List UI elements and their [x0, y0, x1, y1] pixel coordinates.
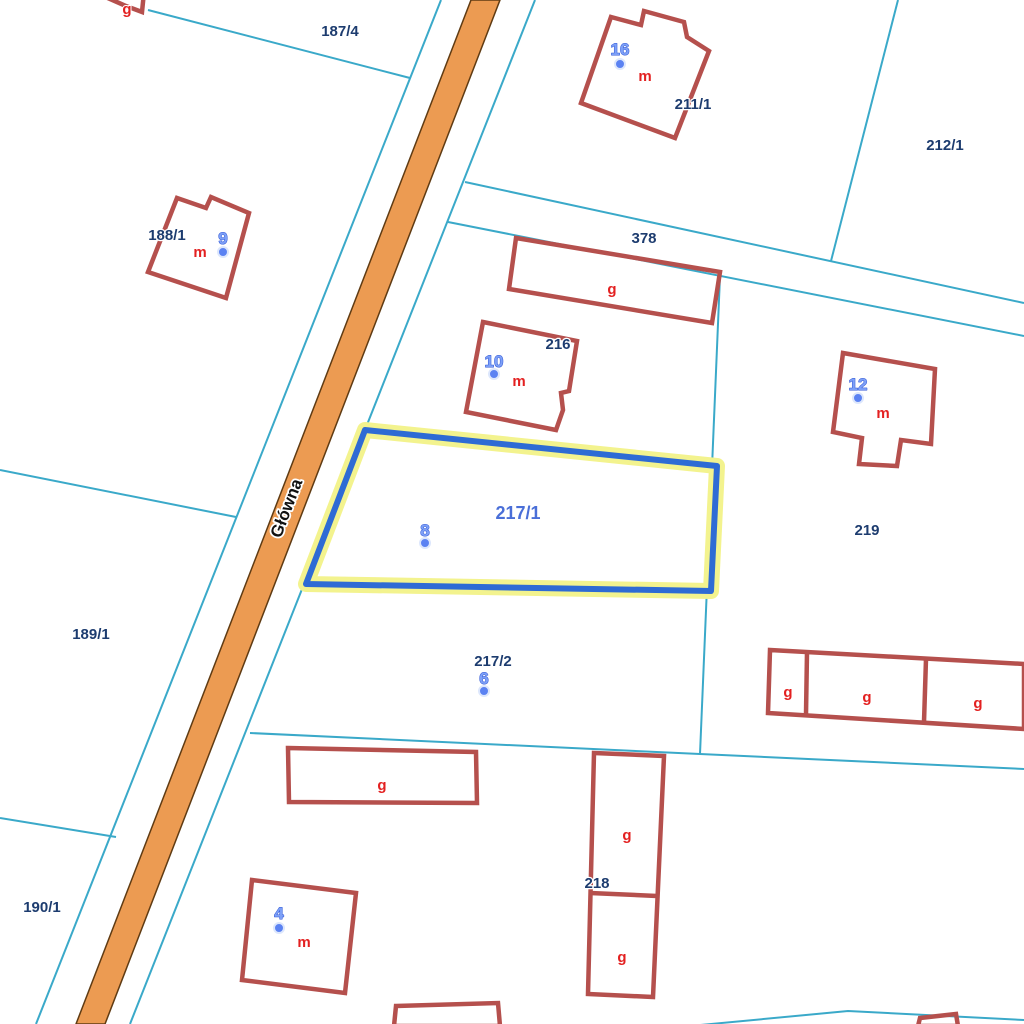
address-dot — [853, 393, 863, 403]
building-label-g: g — [783, 684, 792, 701]
building-label-m: m — [638, 68, 651, 85]
parcel-label-218: 218 — [584, 875, 609, 892]
parcel-label-217-1-selected: 217/1 — [495, 503, 540, 523]
address-dot — [218, 247, 228, 257]
address-dot — [420, 538, 430, 548]
parcel-label-378: 378 — [631, 230, 656, 247]
building-label-g: g — [862, 689, 871, 706]
building-label-m: m — [297, 934, 310, 951]
parcel-label-188-1: 188/1 — [148, 227, 186, 244]
address-number-4: 4 — [274, 904, 284, 923]
address-dot — [479, 686, 489, 696]
parcel-label-212-1: 212/1 — [926, 137, 964, 154]
building-label-g: g — [617, 949, 626, 966]
parcel-label-189-1: 189/1 — [72, 626, 110, 643]
building-label-m: m — [876, 405, 889, 422]
parcel-label-217-2: 217/2 — [474, 653, 512, 670]
address-number-9: 9 — [218, 229, 227, 248]
address-dot — [489, 369, 499, 379]
parcel-label-219: 219 — [854, 522, 879, 539]
building-label-g: g — [622, 827, 631, 844]
parcel-label-190-1: 190/1 — [23, 899, 61, 916]
building-label-g: g — [607, 281, 616, 298]
building-divider — [806, 652, 807, 714]
address-number-16: 16 — [611, 40, 630, 59]
parcel-label-211-1: 211/1 — [675, 96, 712, 113]
address-dot — [274, 923, 284, 933]
parcel-label-216: 216 — [545, 336, 570, 353]
building-label-g: g — [973, 695, 982, 712]
address-number-12: 12 — [849, 375, 868, 394]
cadastral-map-canvas[interactable]: 187/4 211/1 212/1 188/1 378 216 219 217/… — [0, 0, 1024, 1024]
building-label-m: m — [193, 244, 206, 261]
address-dot — [615, 59, 625, 69]
building-label-g: g — [377, 777, 386, 794]
building-label-g: g — [122, 1, 131, 18]
building-divider — [590, 893, 657, 896]
parcel-label-187-4: 187/4 — [321, 23, 359, 40]
building-divider — [924, 659, 926, 722]
building-label-m: m — [512, 373, 525, 390]
